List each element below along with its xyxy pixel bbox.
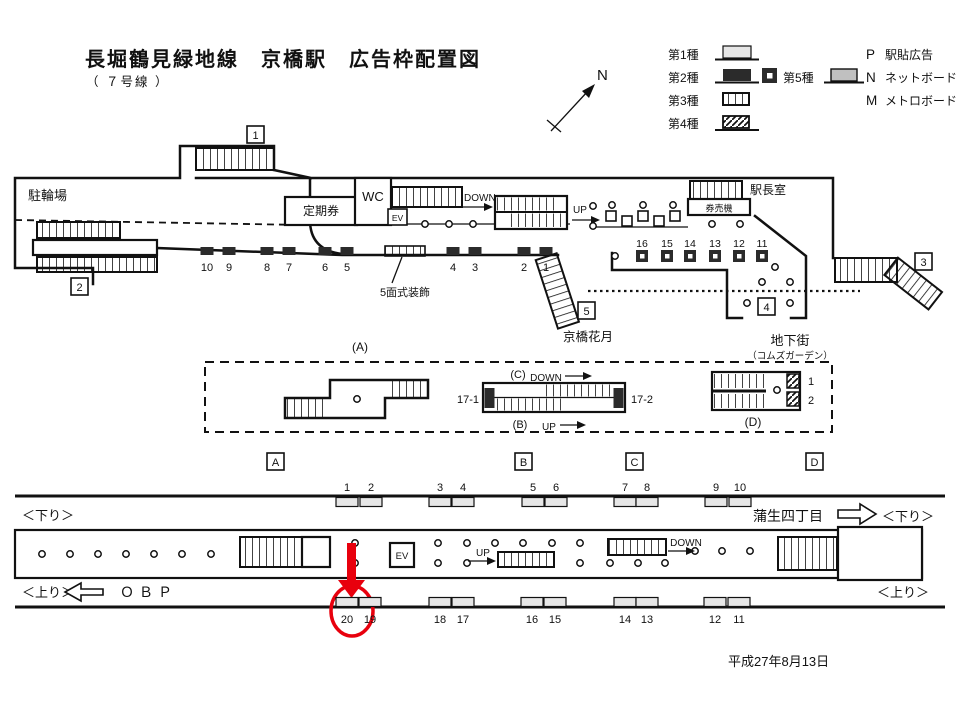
ad-number: 16: [526, 614, 538, 626]
wc-label: WC: [362, 189, 384, 204]
type2-ad-icon: [283, 247, 296, 255]
ad-number: 19: [364, 614, 376, 626]
type1-ad-icon: [544, 598, 566, 607]
mezzanine-up-label: UP: [542, 422, 556, 433]
exit2-upper-stairs-icon: [37, 222, 120, 238]
platform-level: 1 2 3 4 5 6 7 8 9 10 ＜下り＞ 蒲生四丁目 ＜下り＞: [15, 482, 945, 636]
legend-n-label: ネットボード: [885, 71, 957, 85]
mezzanine-level: (A) 地下街 （コムズガーデン） 17-1 17-2 (C) DOWN (B)…: [205, 333, 833, 433]
exit3-diagonal-stairs-icon: [884, 258, 942, 310]
commuter-pass-label: 定期券: [303, 203, 339, 218]
legend-type3-label: 第3種: [668, 94, 699, 108]
z-stairs-lower-icon: [286, 399, 329, 417]
marker-c-label: C: [631, 457, 639, 469]
mezzanine-up-arrowhead-icon: [577, 421, 586, 429]
comms-garden-label: （コムズガーデン）: [747, 350, 833, 362]
pillar-icon: [95, 551, 101, 557]
exit2-landing: [33, 240, 157, 255]
ad-number: 15: [661, 238, 673, 250]
ad-number: 13: [641, 614, 653, 626]
obp-label: ＯＢＰ: [120, 584, 177, 600]
platform-right-stairs-icon: [778, 537, 837, 570]
mezzanine-c-label: (C): [510, 369, 525, 381]
pillar-icon: [662, 560, 668, 566]
pillar-icon: [464, 540, 470, 546]
type1-ad-icon: [614, 598, 636, 607]
ad-number: 16: [636, 238, 648, 250]
deco-pointer-line: [392, 257, 402, 283]
pillar-icon: [354, 396, 360, 402]
ad-number: 4: [450, 262, 456, 274]
pillar-icon: [719, 548, 725, 554]
deco-5panel-icon: [385, 246, 425, 256]
type5-center: [665, 254, 670, 259]
type1-ad-icon: [521, 598, 543, 607]
gamo-label: 蒲生四丁目: [753, 508, 823, 524]
ad-number: 10: [201, 262, 213, 274]
netboard-icon: [831, 69, 857, 81]
pillar-icon: [737, 221, 743, 227]
type1-ad-icon: [705, 498, 727, 507]
ad-number: 6: [553, 482, 559, 494]
type1-ad-icon: [336, 498, 358, 507]
faregates: [606, 211, 680, 226]
underground-mall-label: 地下街: [770, 333, 809, 348]
legend-p-key: P: [866, 47, 875, 62]
platform-bottom-ads: 20 19 18 17 16 15 14 13 12 11: [336, 598, 750, 627]
type2-ad-icon: [518, 247, 531, 255]
type4-ad-icon: [723, 116, 749, 128]
pillar-icon: [590, 203, 596, 209]
ad-number-highlighted: 20: [341, 614, 353, 626]
type2-ad-icon: [261, 247, 274, 255]
mezzanine-down-arrowhead-icon: [583, 372, 592, 380]
faregate-icon: [654, 216, 664, 226]
ad-number: 8: [264, 262, 270, 274]
platform-top-ads: 1 2 3 4 5 6 7 8 9 10: [336, 482, 751, 507]
ad-number: 13: [709, 238, 721, 250]
type4-ad-icon: [787, 374, 799, 388]
legend-type5-label: 第5種: [783, 71, 814, 85]
down-direction-right-label: ＜下り＞: [882, 509, 934, 524]
pillar-icon: [607, 560, 613, 566]
pillar-icon: [39, 551, 45, 557]
compass-north-label: N: [597, 67, 608, 84]
pillar-icon: [179, 551, 185, 557]
ad-number: 3: [472, 262, 478, 274]
type1-ad-icon: [545, 498, 567, 507]
ad-number: 7: [622, 482, 628, 494]
concourse-down-arrowhead-icon: [484, 203, 493, 211]
type1-ad-icon: [359, 598, 381, 607]
exit1-stairs-icon: [196, 148, 274, 170]
concourse-ev-label: EV: [392, 213, 404, 223]
ad-number: 8: [644, 482, 650, 494]
ad-number: 17: [457, 614, 469, 626]
ad-number: 17-1: [457, 394, 479, 406]
ad-number: 14: [619, 614, 631, 626]
exit2-lower-stairs-icon: [37, 257, 157, 272]
escalator-upper-icon: [545, 385, 610, 397]
legend-type2-label: 第2種: [668, 71, 699, 85]
ad-number: 3: [437, 482, 443, 494]
type2-ad-icon: [540, 247, 553, 255]
exit3-label: 3: [920, 257, 926, 269]
faregate-icon: [638, 211, 648, 221]
type1-ad-icon: [729, 498, 751, 507]
type2-ad-icon: [447, 247, 460, 255]
type1-ad-icon: [452, 498, 474, 507]
pillar-icon: [609, 202, 615, 208]
up-direction-right-label: ＜上り＞: [877, 585, 929, 600]
mezzanine-down-label: DOWN: [530, 373, 562, 384]
center-stairs-lower-icon: [509, 214, 565, 228]
pillar-icon: [787, 279, 793, 285]
pillar-icon: [670, 202, 676, 208]
type1-ad-icon: [429, 498, 451, 507]
legend-type1-label: 第1種: [668, 48, 699, 62]
type2-ad-icon: [341, 247, 354, 255]
pillar-icon: [549, 540, 555, 546]
type1-ad-icon: [522, 498, 544, 507]
platform-up-stairs-icon: [498, 552, 554, 567]
kagetsu-label: 京橋花月: [563, 329, 613, 344]
legend-p-label: 駅貼広告: [885, 47, 933, 62]
compass-needle: [551, 91, 588, 131]
ad-number: 9: [713, 482, 719, 494]
ad-number: 12: [709, 614, 721, 626]
exit3-diagonal-stairs-group: [884, 258, 942, 310]
ad-number: 11: [733, 614, 744, 626]
legend-n-key: N: [866, 70, 876, 85]
deco-label: 5面式装飾: [380, 286, 430, 299]
type2-ad-icon: [469, 247, 482, 255]
concourse-level: 1 駐輪場 2 定期券 WC EV DOWN UP: [15, 126, 942, 344]
wc-side-stairs-icon: [392, 187, 462, 207]
type5-ad-icon-center: [767, 73, 773, 79]
marker-a-label: A: [272, 457, 280, 469]
ad-number: 1: [344, 482, 350, 494]
ad-number: 6: [322, 262, 328, 274]
ad-number: 9: [226, 262, 232, 274]
type2-ad-icon: [201, 247, 214, 255]
pillar-icon: [422, 221, 428, 227]
marker-b-label: B: [520, 457, 527, 469]
type3-ad-icon: [723, 93, 749, 105]
type1-ad-icon: [636, 598, 658, 607]
exit2-label: 2: [76, 282, 82, 294]
type1-ad-icon: [360, 498, 382, 507]
escalator-lower-icon: [497, 399, 565, 411]
ad-number: 4: [460, 482, 466, 494]
page-title: 長堀鶴見緑地線 京橋駅 広告枠配置図: [85, 47, 481, 71]
type5-center: [737, 254, 742, 259]
mezzanine-b-label: (B): [513, 419, 528, 431]
ad-number: 10: [734, 482, 746, 494]
pillar-icon: [435, 540, 441, 546]
type1-ad-icon: [723, 46, 751, 58]
header: 長堀鶴見緑地線 京橋駅 広告枠配置図 （ ７号線 ）: [85, 47, 481, 89]
type4-ad-icon: [787, 392, 799, 406]
d-stairs-upper-icon: [714, 374, 768, 388]
pillar-icon: [640, 202, 646, 208]
ad-number: 18: [434, 614, 446, 626]
type1-ad-icon: [614, 498, 636, 507]
ad-number: 5: [530, 482, 536, 494]
legend: 第1種 第2種 第5種 第3種 第4種 P 駅貼広告 N ネットボード M メト…: [668, 46, 957, 131]
faregate-icon: [622, 216, 632, 226]
type5-center: [688, 254, 693, 259]
exit4-label: 4: [763, 302, 769, 314]
type2-ad-icon: [223, 247, 236, 255]
type5-center: [760, 254, 765, 259]
pillar-icon: [612, 253, 618, 259]
type1-ad-icon: [704, 598, 726, 607]
ad-number: 15: [549, 614, 561, 626]
concourse-down-label: DOWN: [464, 193, 496, 204]
type2-ad-icon: [723, 69, 751, 81]
mezzanine-d-label: (D): [745, 415, 762, 429]
page-subtitle: （ ７号線 ）: [86, 74, 169, 89]
pillar-icon: [577, 560, 583, 566]
exit5-stairs-group: [536, 253, 579, 328]
z-stairs-upper-icon: [386, 381, 427, 397]
type1-ad-icon: [336, 598, 358, 607]
faregate-icon: [670, 211, 680, 221]
pillar-icon: [520, 540, 526, 546]
faregate-icon: [606, 211, 616, 221]
pillar-icon: [208, 551, 214, 557]
bicycle-parking-label: 駐輪場: [28, 188, 67, 203]
center-stairs-upper-icon: [497, 198, 555, 211]
pillar-icon: [151, 551, 157, 557]
platform-end-room: [838, 527, 922, 580]
concourse-up-label: UP: [573, 205, 587, 216]
pillar-icon: [590, 223, 596, 229]
pillar-icon: [577, 540, 583, 546]
pillar-icon: [772, 264, 778, 270]
ad-number: 2: [521, 262, 527, 274]
type5-center: [640, 254, 645, 259]
ad-17-1-icon: [485, 388, 495, 408]
right-direction-arrow-icon: [838, 504, 876, 524]
platform-up-label: UP: [476, 548, 490, 559]
compass: N: [547, 67, 608, 132]
pillar-icon: [744, 300, 750, 306]
pillar-icon: [435, 560, 441, 566]
ad-number: 2: [808, 395, 814, 407]
type1-ad-icon: [452, 598, 474, 607]
pillar-icon: [635, 560, 641, 566]
legend-m-label: メトロボード: [885, 94, 957, 108]
pillar-icon: [787, 300, 793, 306]
down-direction-left-label: ＜下り＞: [22, 508, 74, 523]
highlight-arrow-shaft: [347, 543, 356, 580]
ad-number: 2: [368, 482, 374, 494]
ad-number: 12: [733, 238, 745, 250]
pillar-icon: [759, 279, 765, 285]
ticket-room-stairs-icon: [690, 181, 742, 199]
pillar-icon: [492, 540, 498, 546]
pillar-icon: [774, 387, 780, 393]
pillar-icon: [446, 221, 452, 227]
type1-ad-icon: [728, 598, 750, 607]
exit5-label: 5: [583, 306, 589, 318]
platform-left-stairs-landing: [302, 537, 330, 567]
ad-number: 17-2: [631, 394, 653, 406]
pillar-icon: [709, 221, 715, 227]
exit1-label: 1: [252, 130, 258, 142]
ad-number: 14: [684, 238, 696, 250]
type1-ad-icon: [429, 598, 451, 607]
ad-17-2-icon: [614, 388, 624, 408]
type1-ad-icon: [636, 498, 658, 507]
concourse-type5-ads: 16 15 14 13 12 11: [636, 238, 768, 262]
ad-number: 1: [808, 376, 814, 388]
legend-m-key: M: [866, 93, 877, 108]
marker-d-label: D: [811, 457, 819, 469]
ad-number: 5: [344, 262, 350, 274]
d-stairs-lower-icon: [714, 394, 768, 408]
type5-center: [713, 254, 718, 259]
ticket-machines-label: 券売機: [705, 203, 732, 214]
mezzanine-a-label: (A): [352, 340, 368, 354]
station-ad-layout-diagram: 長堀鶴見緑地線 京橋駅 広告枠配置図 （ ７号線 ） N 第1種 第2種 第5種…: [0, 0, 960, 720]
legend-type4-label: 第4種: [668, 117, 699, 131]
pillar-icon: [747, 548, 753, 554]
revision-date: 平成27年8月13日: [728, 654, 829, 669]
platform-down-stairs-icon: [608, 539, 666, 555]
platform-left-stairs-icon: [240, 537, 302, 567]
platform-ev-label: EV: [396, 551, 409, 562]
type2-ad-icon: [319, 247, 332, 255]
pillar-icon: [470, 221, 476, 227]
pillar-icon: [123, 551, 129, 557]
station-master-label: 駅長室: [750, 182, 786, 197]
stair-markers: A B C D: [267, 453, 823, 470]
ad-number: 7: [286, 262, 292, 274]
ad-number: 11: [757, 238, 768, 250]
pillar-icon: [67, 551, 73, 557]
exit5-stairs-icon: [536, 253, 579, 328]
